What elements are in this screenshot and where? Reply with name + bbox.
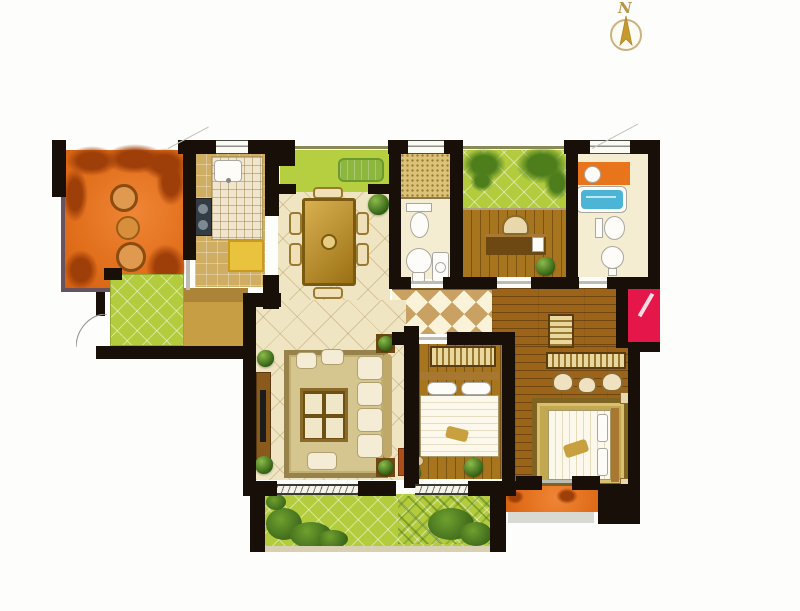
tv bbox=[260, 390, 266, 442]
entry-door-swing bbox=[76, 314, 108, 348]
door bbox=[186, 260, 190, 290]
pillow bbox=[461, 382, 491, 395]
wall bbox=[516, 476, 542, 490]
utility-red-cabinet bbox=[628, 288, 660, 342]
exterior-ledge bbox=[508, 512, 594, 523]
pillow bbox=[597, 448, 608, 476]
plant bbox=[378, 336, 393, 351]
wall bbox=[443, 277, 497, 289]
shower-area bbox=[400, 153, 450, 197]
wash-basin bbox=[406, 248, 432, 274]
burner bbox=[198, 220, 208, 230]
foliage-blob bbox=[470, 170, 494, 192]
wall bbox=[490, 488, 506, 552]
table-centerpiece bbox=[321, 234, 337, 250]
foyer-cabinet bbox=[184, 288, 248, 302]
toilet-tank bbox=[595, 218, 603, 238]
refrigerator bbox=[228, 240, 264, 272]
armchair bbox=[296, 352, 317, 369]
wall bbox=[628, 352, 640, 488]
compass: N bbox=[601, 2, 651, 56]
plant bbox=[368, 194, 389, 215]
sofa-cushion bbox=[357, 382, 383, 406]
balcony-edge bbox=[265, 546, 491, 552]
wall bbox=[243, 293, 256, 488]
wall bbox=[250, 488, 265, 552]
floor-plan-canvas: N bbox=[0, 0, 800, 611]
sofa-cushion bbox=[357, 408, 383, 432]
basin-pedestal bbox=[608, 268, 617, 276]
wall bbox=[598, 484, 640, 524]
wall bbox=[531, 277, 579, 289]
wall bbox=[616, 288, 628, 348]
toilet bbox=[410, 212, 429, 238]
dining-chair bbox=[289, 212, 302, 235]
coffee-table-pane bbox=[305, 394, 322, 414]
dining-chair bbox=[356, 243, 369, 266]
faucet bbox=[226, 178, 231, 183]
wall bbox=[607, 277, 660, 289]
wall bbox=[404, 326, 419, 488]
sofa-cushion bbox=[357, 356, 383, 380]
dining-chair bbox=[356, 212, 369, 235]
bathtub-wave bbox=[586, 196, 616, 198]
rattan-chair bbox=[110, 184, 138, 212]
wall bbox=[564, 140, 590, 154]
door bbox=[411, 281, 443, 284]
wall bbox=[96, 292, 105, 316]
burner bbox=[198, 204, 208, 214]
foliage-blob bbox=[64, 250, 98, 290]
armchair bbox=[321, 349, 344, 365]
shower-screen bbox=[400, 197, 450, 199]
pillow bbox=[427, 382, 457, 395]
plant bbox=[257, 350, 274, 367]
wall bbox=[389, 153, 401, 289]
wall bbox=[96, 346, 249, 359]
coffee-table-pane bbox=[326, 394, 343, 414]
wall bbox=[388, 140, 408, 154]
wall bbox=[502, 332, 515, 488]
coffee-table-pane bbox=[305, 418, 322, 438]
plant bbox=[536, 257, 555, 276]
door bbox=[497, 281, 531, 284]
door bbox=[579, 281, 607, 284]
bush bbox=[460, 522, 492, 546]
sofa-back bbox=[383, 354, 392, 458]
wall bbox=[572, 476, 600, 490]
wall bbox=[266, 184, 296, 194]
coffee-table-pane bbox=[326, 418, 343, 438]
wall bbox=[358, 481, 396, 496]
vanity-basin bbox=[584, 166, 601, 183]
bathtub-water bbox=[581, 190, 623, 209]
room-entry-garden bbox=[110, 274, 184, 346]
wall bbox=[389, 277, 411, 289]
balcony-window bbox=[415, 484, 468, 495]
toilet bbox=[604, 216, 625, 240]
plant bbox=[255, 456, 273, 474]
stool bbox=[552, 372, 574, 392]
stool bbox=[601, 372, 623, 392]
dining-chair bbox=[289, 243, 302, 266]
balcony-table bbox=[116, 216, 140, 240]
balcony-window bbox=[277, 484, 358, 495]
sofa-cushion bbox=[357, 434, 383, 458]
washer-drum bbox=[435, 262, 446, 273]
wall bbox=[566, 153, 578, 288]
plant bbox=[378, 460, 393, 475]
window bbox=[216, 140, 248, 154]
bed-second bbox=[420, 395, 499, 457]
foliage-blob bbox=[156, 158, 186, 206]
wall bbox=[183, 150, 196, 260]
dresser bbox=[546, 352, 626, 369]
wall bbox=[104, 268, 122, 280]
bush bbox=[266, 494, 286, 510]
compass-north-label: N bbox=[618, 0, 632, 17]
headboard bbox=[420, 372, 499, 380]
door bbox=[542, 480, 572, 483]
wardrobe bbox=[430, 346, 496, 367]
desk-chair bbox=[502, 215, 529, 235]
wall bbox=[52, 140, 66, 197]
wall bbox=[628, 342, 660, 352]
garden-bench bbox=[338, 158, 384, 182]
wall bbox=[648, 152, 660, 288]
wash-basin bbox=[601, 246, 624, 269]
plant bbox=[464, 458, 483, 477]
computer bbox=[532, 237, 544, 252]
wall bbox=[450, 140, 463, 288]
window bbox=[408, 140, 444, 154]
headboard bbox=[611, 408, 619, 482]
foliage-blob bbox=[556, 488, 578, 504]
balcony-railing bbox=[462, 146, 566, 149]
dining-chair bbox=[313, 287, 343, 299]
wardrobe bbox=[548, 314, 574, 348]
armchair bbox=[307, 452, 337, 470]
stool bbox=[577, 376, 597, 394]
balcony-railing bbox=[280, 146, 390, 149]
pillow bbox=[597, 414, 608, 442]
toilet-tank bbox=[406, 203, 432, 212]
window bbox=[590, 140, 632, 154]
